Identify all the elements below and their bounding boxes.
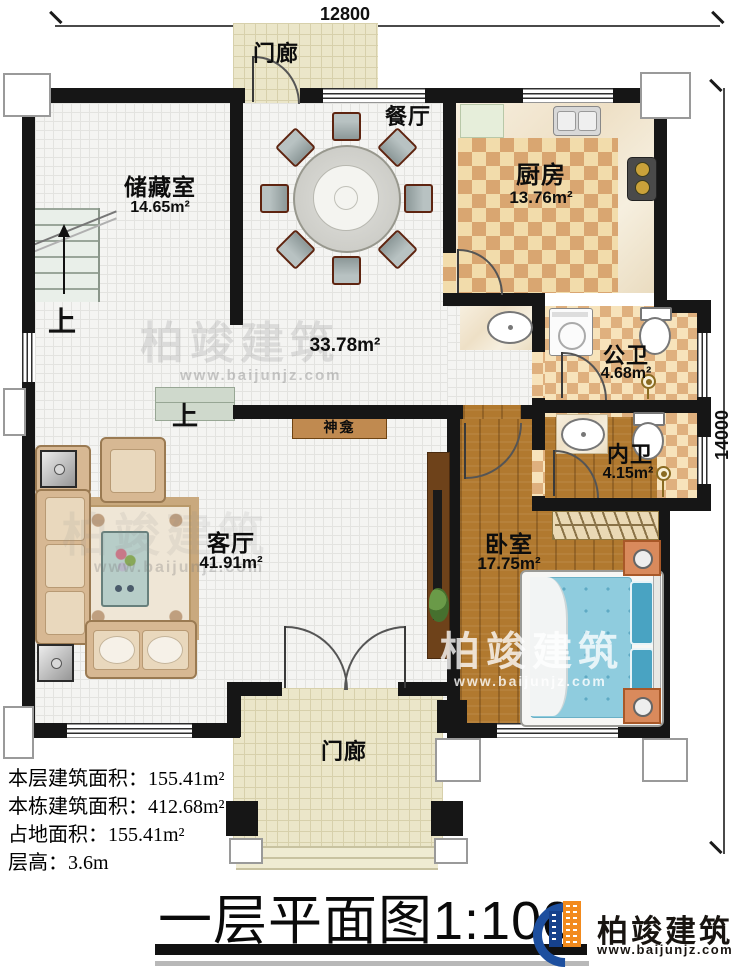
shrine-label: 神龛 [324, 419, 356, 435]
column-footing [3, 73, 51, 117]
info-line-1: 本层建筑面积：155.41m² [8, 762, 225, 791]
wash-basin [487, 311, 533, 344]
room-area-hall: 33.78m² [303, 336, 387, 355]
bedroom-door-threshold [463, 405, 521, 419]
stairs-up-label: 上 [48, 300, 76, 340]
room-label-kitchen: 厨房 [504, 163, 578, 188]
nightstand [623, 688, 661, 724]
room-area-bedroom: 17.75m² [472, 555, 546, 572]
building-windows [573, 905, 577, 943]
window [697, 437, 711, 484]
info-line-2: 本栋建筑面积：412.68m² [8, 790, 225, 819]
table-dot [115, 585, 122, 592]
wall [22, 88, 245, 103]
bath-door-threshold [532, 450, 545, 496]
wall [521, 405, 545, 419]
door-leaf [561, 352, 563, 398]
porch-column [226, 801, 258, 836]
porch-column [437, 700, 467, 733]
info-line-4: 层高：3.6m [8, 846, 109, 875]
kitchen-door-threshold [443, 253, 456, 293]
table-dot [127, 585, 134, 592]
lamp-stem [647, 387, 649, 399]
armchair [100, 437, 166, 503]
dining-chair [260, 184, 289, 213]
info-label: 占地面积： [8, 824, 108, 846]
stair-arrow-head [58, 224, 70, 237]
step-up-label: 上 [172, 396, 198, 433]
room-label-living: 客厅 [202, 531, 260, 555]
info-label: 层高： [8, 852, 68, 874]
column-footing [3, 388, 26, 436]
wall [443, 88, 456, 253]
door-leaf [457, 249, 459, 293]
column-footing [640, 72, 691, 119]
building-windows [552, 914, 556, 944]
brand-building-orange-icon [563, 901, 581, 947]
window [323, 88, 425, 103]
wall [654, 88, 667, 313]
column-footing [229, 838, 263, 864]
washing-machine-panel [552, 312, 588, 317]
room-area-public-bath: 4.68m² [595, 366, 657, 382]
column-footing [642, 738, 688, 782]
top-dimension-label: 12800 [300, 4, 390, 25]
washing-machine-door [558, 322, 586, 350]
burner [635, 180, 650, 195]
wardrobe [552, 511, 659, 540]
wall [545, 400, 697, 413]
wall [233, 405, 463, 419]
info-value: 3.6m [68, 852, 109, 874]
wash-basin [561, 418, 605, 451]
side-table [37, 644, 74, 682]
door-leaf [464, 423, 466, 479]
porch-column [431, 801, 463, 836]
dining-chair [404, 184, 433, 213]
entry-door-left-leaf [284, 626, 286, 688]
wall [532, 496, 545, 511]
room-area-ensuite-bath: 4.15m² [597, 466, 659, 482]
wardrobe-rail [555, 524, 655, 526]
column-footing [434, 838, 468, 864]
wall [425, 88, 523, 103]
dining-table-center [334, 186, 358, 210]
window [523, 88, 613, 103]
info-line-3: 占地面积：155.41m² [8, 818, 185, 847]
watermark-url: www.baijunjz.com [180, 368, 420, 383]
dimension-tick [709, 79, 722, 92]
sofa-cushion [45, 591, 85, 635]
title-underline-gray [155, 961, 589, 966]
window [67, 723, 192, 738]
sofa-bottom [85, 620, 197, 679]
dining-chair [332, 112, 361, 141]
sink-bowl [557, 111, 576, 131]
door-leaf [553, 450, 555, 496]
column-footing [435, 738, 481, 782]
info-value: 155.41m² [108, 824, 185, 846]
room-label-ensuite-bath: 内卫 [601, 443, 659, 466]
wall [227, 682, 241, 737]
right-dimension-label: 14000 [712, 395, 736, 475]
shrine-console: 神龛 [292, 418, 387, 439]
dimension-tick [709, 841, 722, 854]
stair-direction-arrow [63, 236, 65, 294]
column-footing [3, 706, 34, 759]
brand-building-blue-icon [549, 911, 562, 947]
kitchen-cabinet [460, 104, 504, 138]
kitchen-sink [553, 106, 601, 136]
sofa-pillow [99, 636, 135, 664]
brand-logo [533, 893, 595, 961]
stove [627, 157, 657, 201]
info-label: 本栋建筑面积： [8, 796, 148, 818]
burner [635, 162, 650, 177]
entry-door-right-leaf [404, 626, 406, 688]
title-underline [155, 944, 587, 955]
top-dimension-line [55, 25, 720, 27]
wall [230, 88, 243, 325]
info-label: 本层建筑面积： [8, 768, 148, 790]
room-label-porch-top: 门廊 [248, 42, 304, 65]
room-area-storage: 14.65m² [110, 200, 210, 216]
wall [532, 293, 545, 352]
plant [429, 588, 449, 622]
bath-door-threshold [532, 352, 545, 398]
room-area-living: 41.91m² [196, 554, 266, 571]
sink-bowl [578, 111, 597, 131]
dining-chair [332, 256, 361, 285]
dimension-tick [711, 11, 724, 24]
watermark: 柏竣建筑 www.baijunjz.com [440, 632, 670, 688]
wall [300, 88, 323, 103]
room-label-public-bath: 公卫 [597, 344, 655, 367]
brand-url: www.baijunjz.com [597, 942, 747, 957]
wall [545, 498, 711, 511]
sofa-pillow [147, 636, 183, 664]
porch-bottom-floor [233, 688, 443, 848]
armchair-cushion [110, 449, 156, 493]
porch-steps [236, 846, 438, 870]
washing-machine [549, 308, 593, 356]
room-area-kitchen: 13.76m² [502, 189, 580, 206]
window [22, 333, 35, 382]
room-label-storage: 储藏室 [108, 175, 212, 199]
window [697, 333, 711, 397]
info-value: 155.41m² [148, 768, 225, 790]
side-table [40, 450, 77, 488]
watermark-text: 柏竣建筑 [440, 630, 624, 674]
lamp-stem [662, 479, 664, 497]
watermark-url: www.baijunjz.com [454, 674, 670, 688]
room-label-porch-bottom: 门廊 [314, 740, 374, 763]
building-windows [566, 905, 570, 943]
room-label-bedroom: 卧室 [480, 532, 538, 556]
floor-plan: 12800 14000 上 上 神龛 [0, 0, 750, 976]
nightstand [623, 540, 661, 576]
room-label-dining: 餐厅 [378, 105, 438, 128]
info-value: 412.68m² [148, 796, 225, 818]
dimension-tick [49, 11, 62, 24]
